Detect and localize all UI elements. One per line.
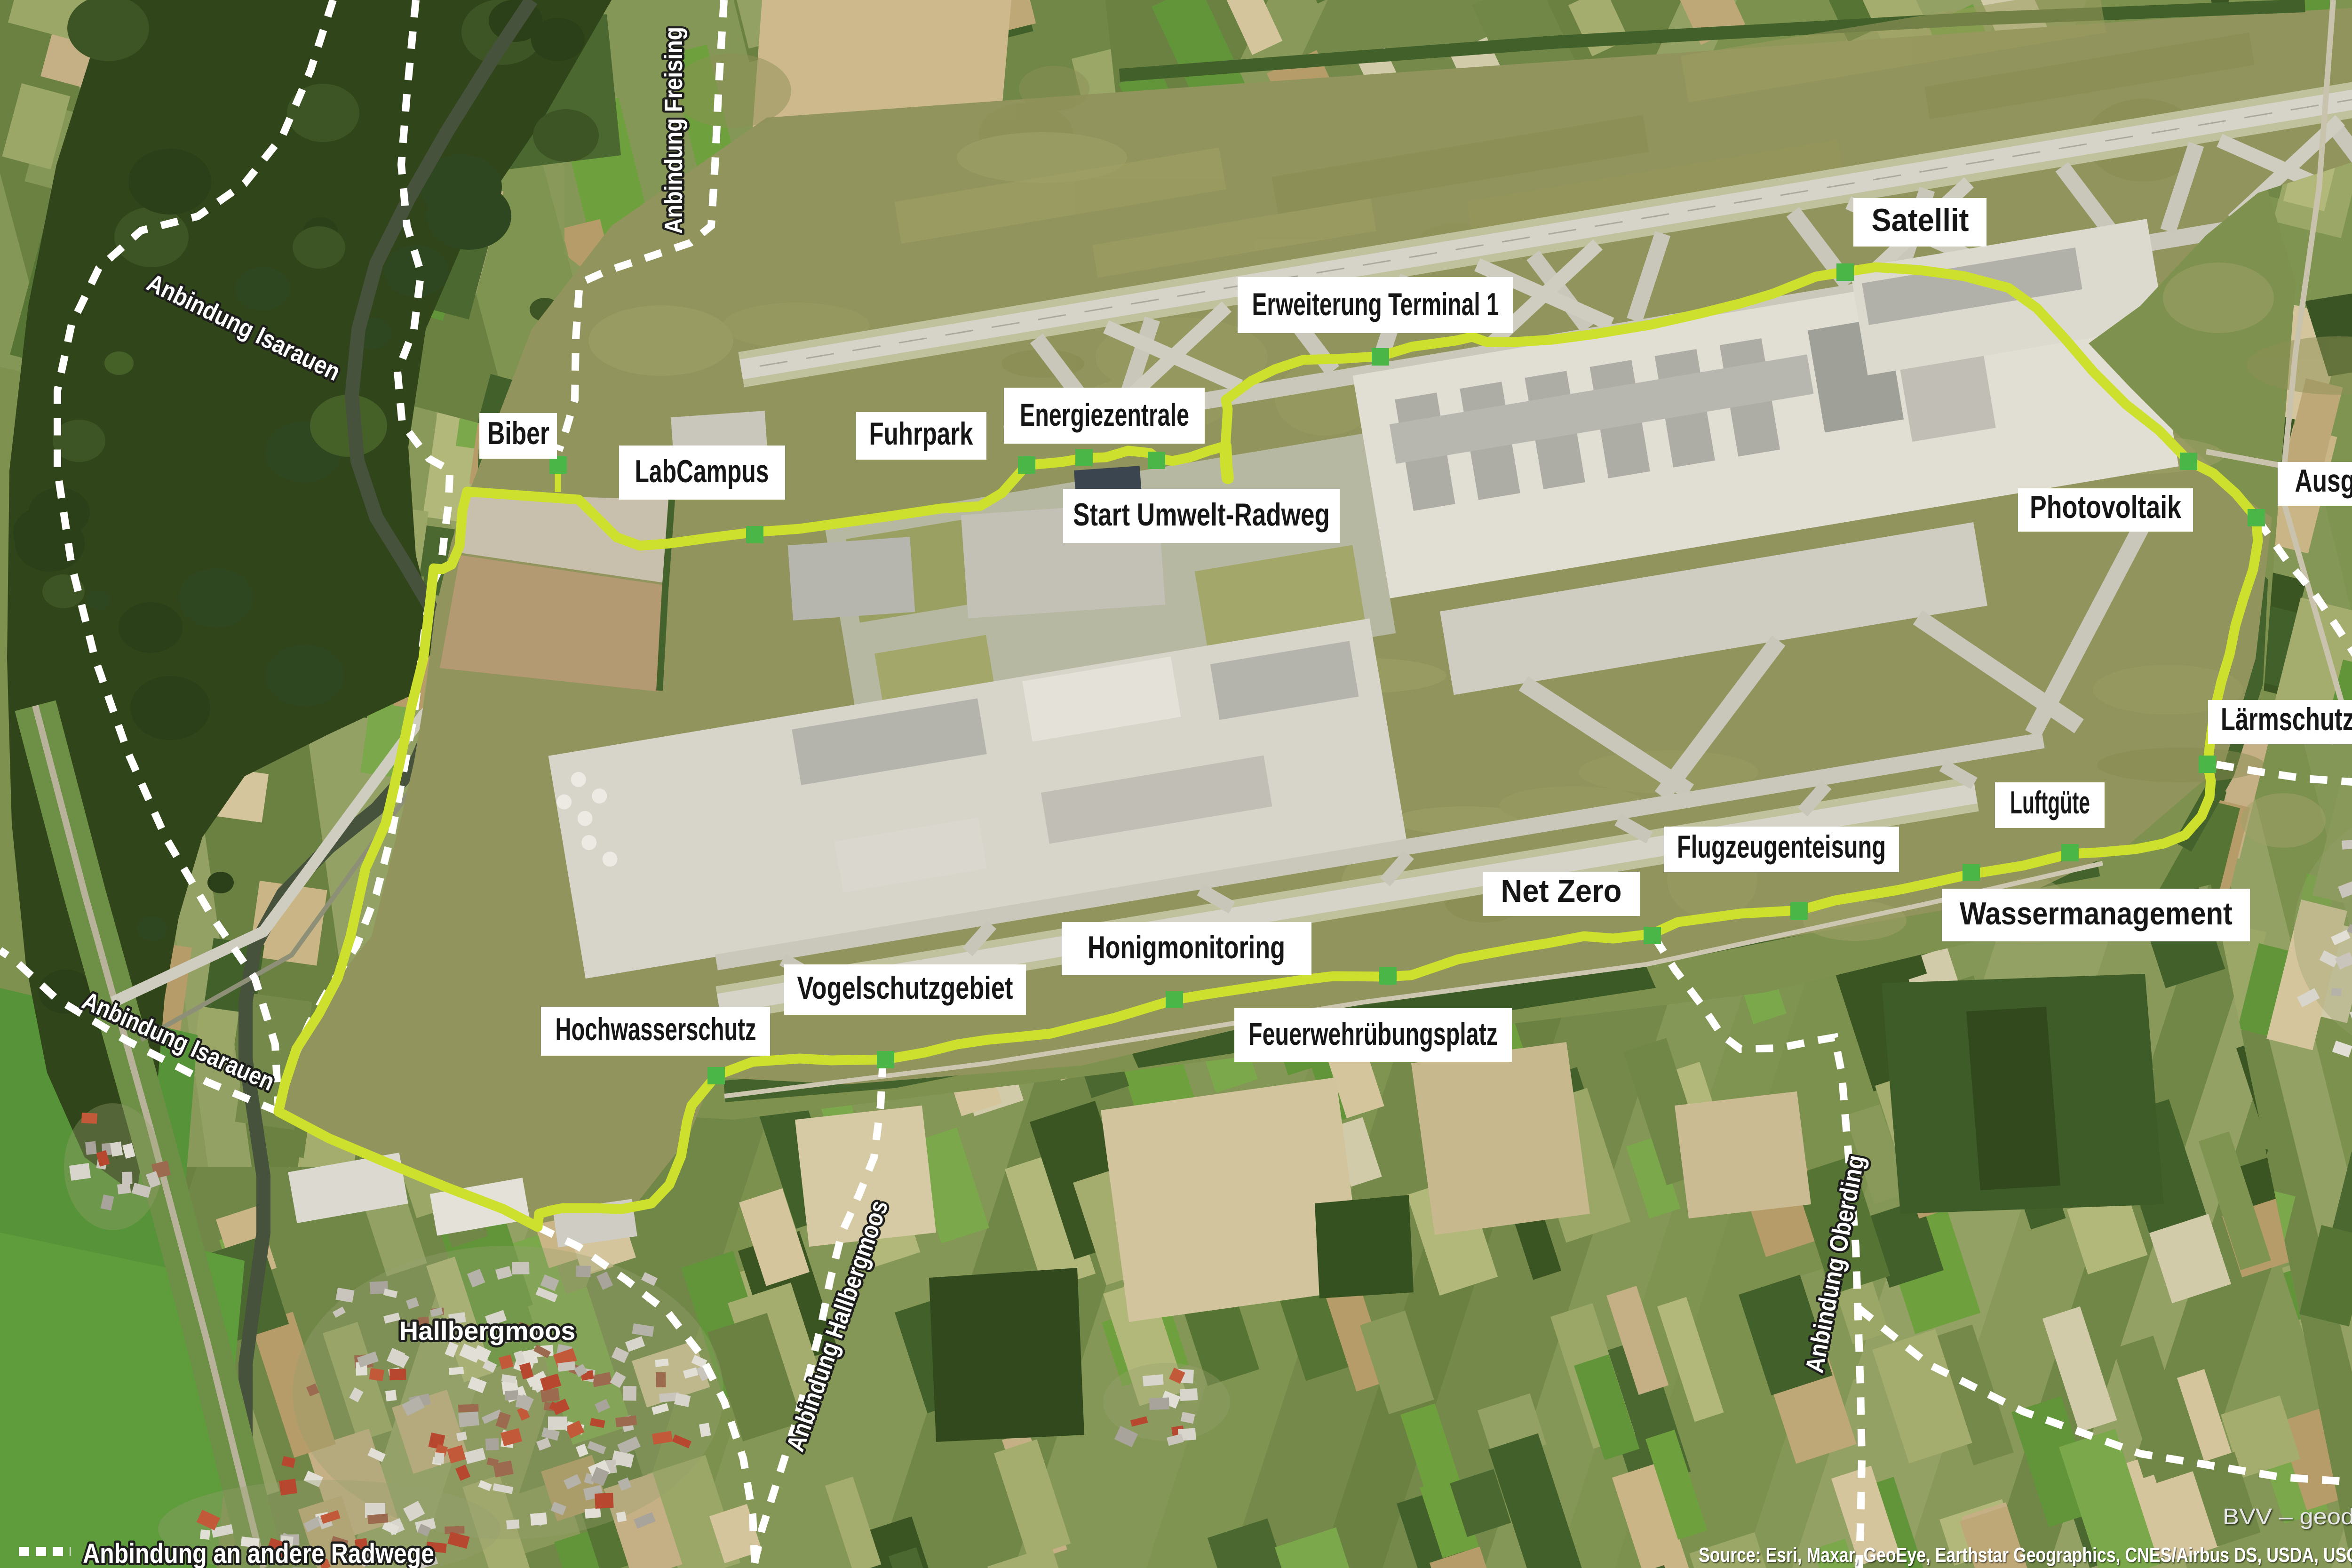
svg-text:Fuhrpark: Fuhrpark — [869, 416, 973, 452]
svg-text:Anbindung an andere Radwege: Anbindung an andere Radwege — [83, 1538, 434, 1568]
svg-text:Start Umwelt-Radweg: Start Umwelt-Radweg — [1073, 497, 1330, 533]
svg-text:Wassermanagement: Wassermanagement — [1960, 896, 2233, 931]
svg-text:Honigmonitoring: Honigmonitoring — [1088, 930, 1285, 965]
svg-text:Flugzeugenteisung: Flugzeugenteisung — [1677, 829, 1886, 865]
svg-text:Anbindung Freising: Anbindung Freising — [660, 27, 688, 234]
svg-text:Source: Esri, Maxar, GeoEye, E: Source: Esri, Maxar, GeoEye, Earthstar G… — [1699, 1544, 2352, 1567]
svg-text:Vogelschutzgebiet: Vogelschutzgebiet — [797, 970, 1013, 1006]
svg-text:Hochwasserschutz: Hochwasserschutz — [556, 1011, 756, 1047]
svg-text:LabCampus: LabCampus — [635, 454, 769, 489]
svg-text:Lärmschutz: Lärmschutz — [2221, 701, 2352, 737]
svg-text:Biber: Biber — [487, 415, 549, 451]
svg-text:Luftgüte: Luftgüte — [2010, 785, 2090, 820]
svg-text:Erweiterung Terminal 1: Erweiterung Terminal 1 — [1252, 287, 1499, 322]
svg-text:Net Zero: Net Zero — [1501, 873, 1622, 909]
svg-text:BVV – geodaten.bayern.de, Maxa: BVV – geodaten.bayern.de, Maxar, Microso… — [2223, 1504, 2352, 1529]
svg-text:Satellit: Satellit — [1872, 202, 1969, 238]
svg-text:Photovoltaik: Photovoltaik — [2030, 489, 2181, 525]
svg-text:Hallbergmoos: Hallbergmoos — [399, 1316, 576, 1345]
svg-text:Feuerwehrübungsplatz: Feuerwehrübungsplatz — [1248, 1016, 1498, 1052]
svg-text:Energiezentrale: Energiezentrale — [1020, 397, 1189, 433]
svg-text:Ausgleichsfläche: Ausgleichsfläche — [2295, 463, 2352, 499]
